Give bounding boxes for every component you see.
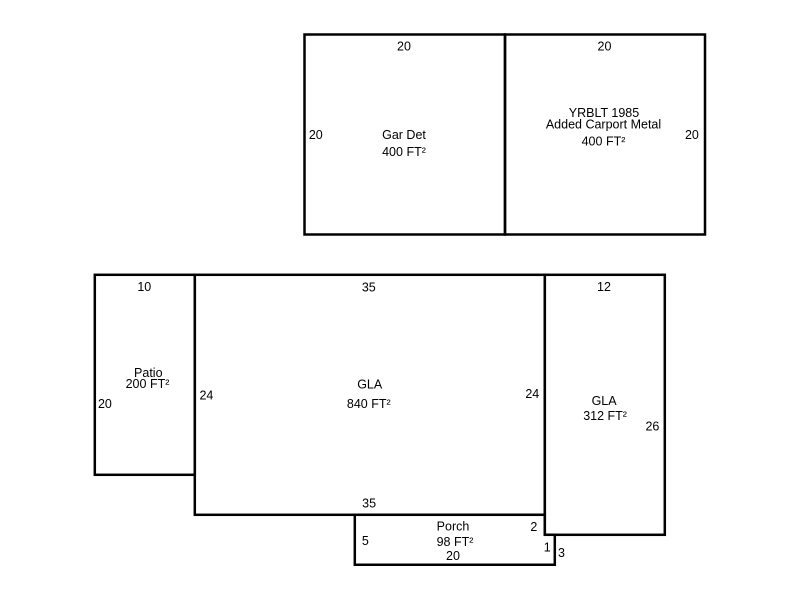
- svg-text:2: 2: [530, 520, 537, 534]
- svg-text:400 FT²: 400 FT²: [382, 145, 426, 159]
- svg-text:35: 35: [362, 280, 376, 294]
- svg-text:20: 20: [685, 128, 699, 142]
- svg-text:GLA: GLA: [592, 394, 618, 408]
- svg-text:GLA: GLA: [357, 377, 383, 391]
- svg-text:20: 20: [98, 397, 112, 411]
- svg-text:10: 10: [137, 280, 151, 294]
- svg-text:1: 1: [544, 541, 551, 555]
- svg-text:98 FT²: 98 FT²: [437, 535, 474, 549]
- svg-text:200 FT²: 200 FT²: [126, 377, 170, 391]
- svg-text:5: 5: [362, 534, 369, 548]
- svg-text:840 FT²: 840 FT²: [347, 397, 391, 411]
- svg-text:20: 20: [446, 549, 460, 563]
- svg-text:400 FT²: 400 FT²: [582, 134, 626, 148]
- svg-text:Porch: Porch: [437, 520, 470, 534]
- svg-text:12: 12: [597, 280, 611, 294]
- svg-text:24: 24: [199, 388, 213, 402]
- svg-text:Gar Det: Gar Det: [382, 128, 426, 142]
- svg-text:20: 20: [598, 40, 612, 54]
- svg-text:24: 24: [525, 387, 539, 401]
- svg-text:Added Carport Metal: Added Carport Metal: [546, 118, 661, 132]
- svg-text:35: 35: [362, 497, 376, 511]
- svg-text:20: 20: [309, 128, 323, 142]
- svg-text:312 FT²: 312 FT²: [583, 409, 627, 423]
- svg-text:26: 26: [645, 420, 659, 434]
- svg-text:20: 20: [397, 40, 411, 54]
- svg-text:3: 3: [558, 546, 565, 560]
